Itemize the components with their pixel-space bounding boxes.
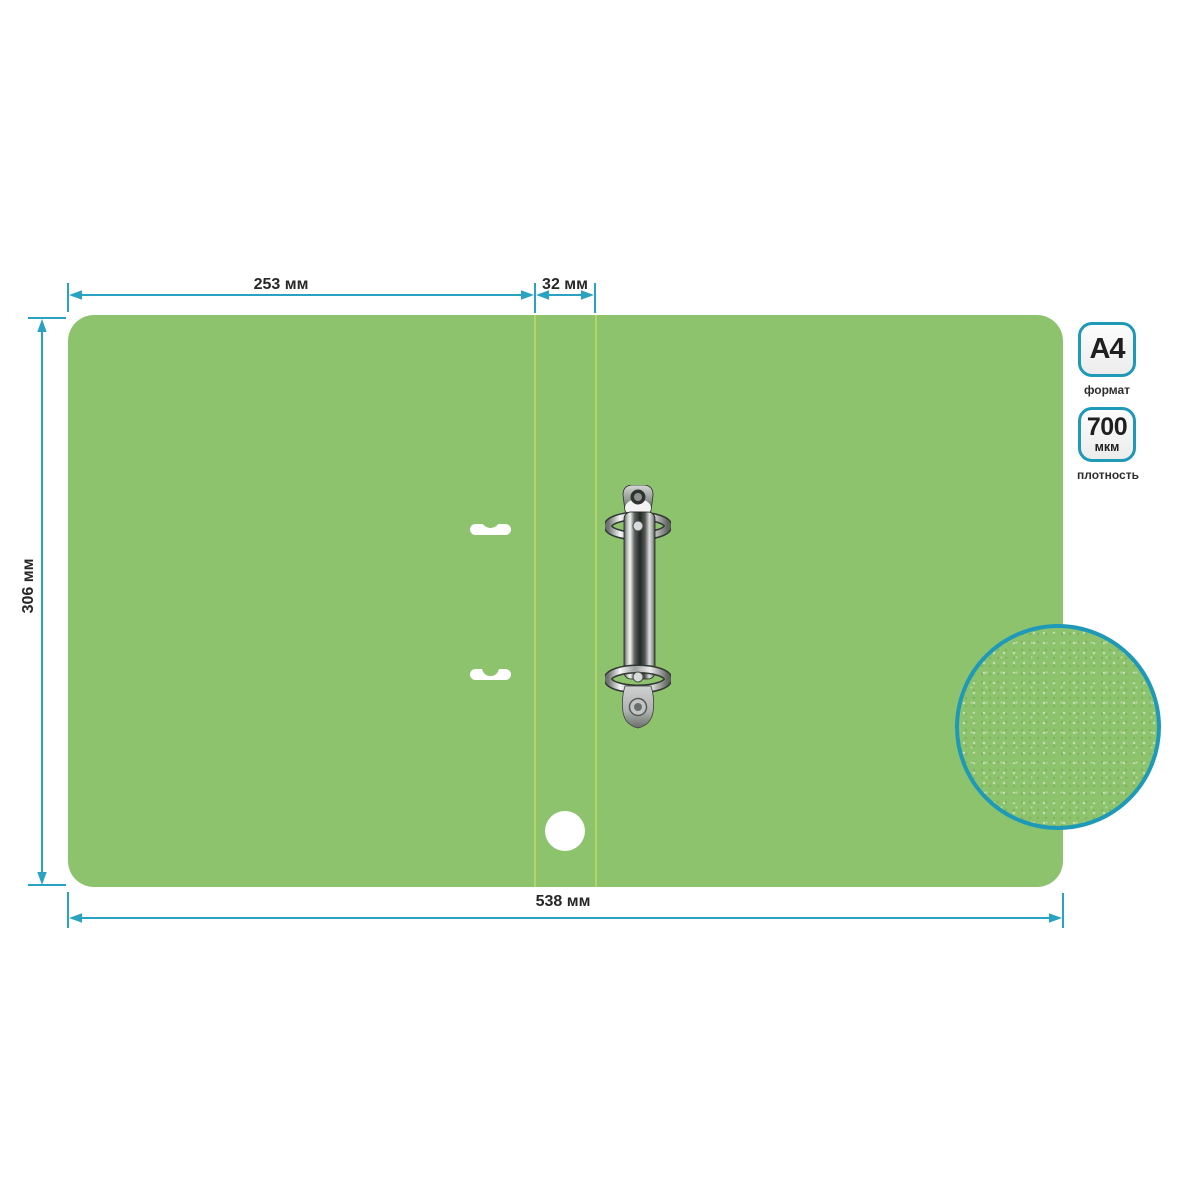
- badge-density-box: 700 мкм: [1078, 407, 1136, 462]
- badge-format-caption: формат: [1077, 383, 1137, 397]
- badge-density-unit: мкм: [1095, 441, 1120, 454]
- dimension-label-total-width: 538 мм: [536, 893, 591, 911]
- product-dimension-diagram: 253 мм 32 мм 306 мм 538 мм A4 формат 700…: [0, 0, 1200, 1200]
- punch-hole: [545, 811, 585, 851]
- slot-cutout-top: [470, 524, 511, 535]
- spine-fold-line-right: [595, 315, 597, 887]
- ring-mechanism: [605, 485, 671, 729]
- badge-format: A4 формат: [1077, 322, 1137, 397]
- badge-format-value: A4: [1089, 335, 1124, 364]
- dimension-label-cover-width: 253 мм: [254, 276, 309, 294]
- badge-density: 700 мкм плотность: [1077, 407, 1137, 482]
- binder-unfolded-body: [68, 315, 1063, 887]
- slot-cutout-bottom: [470, 669, 511, 680]
- badge-density-caption: плотность: [1077, 468, 1137, 482]
- spine-fold-line-left: [534, 315, 536, 887]
- dimension-label-spine-width: 32 мм: [542, 276, 588, 294]
- dimension-label-height: 306 мм: [20, 559, 38, 614]
- texture-zoom-circle: [955, 624, 1161, 830]
- badge-format-box: A4: [1078, 322, 1136, 377]
- badge-density-value: 700: [1087, 415, 1127, 440]
